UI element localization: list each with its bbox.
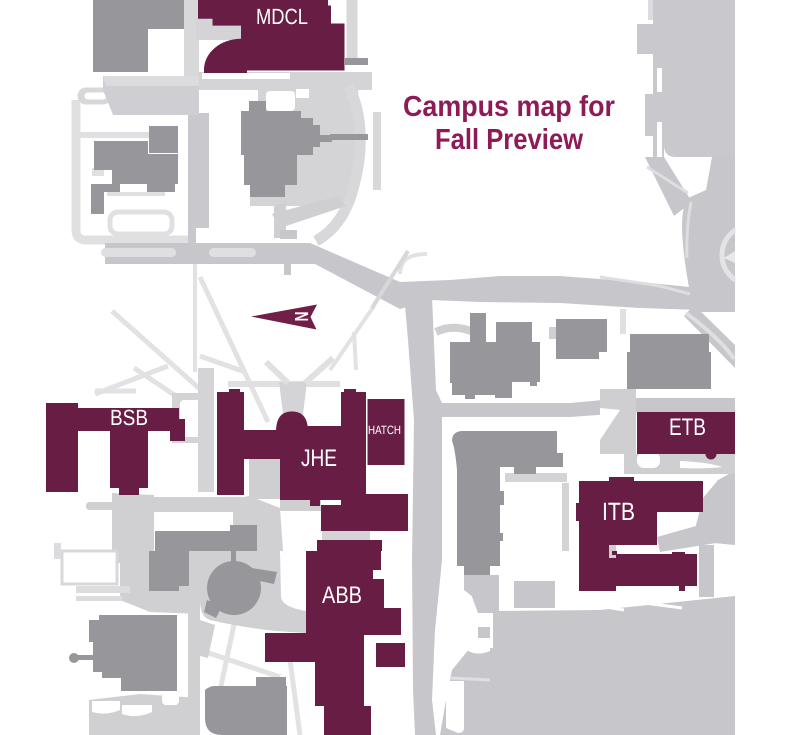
svg-text:BSB: BSB — [110, 405, 148, 430]
svg-text:ETB: ETB — [669, 414, 706, 441]
svg-text:Campus map for: Campus map for — [403, 91, 615, 123]
svg-text:HATCH: HATCH — [368, 423, 401, 437]
svg-text:Fall Preview: Fall Preview — [435, 124, 583, 156]
svg-text:MDCL: MDCL — [256, 4, 308, 29]
svg-text:N: N — [290, 312, 311, 322]
svg-text:ABB: ABB — [322, 582, 362, 609]
svg-text:JHE: JHE — [301, 445, 337, 472]
svg-text:ITB: ITB — [602, 498, 635, 526]
